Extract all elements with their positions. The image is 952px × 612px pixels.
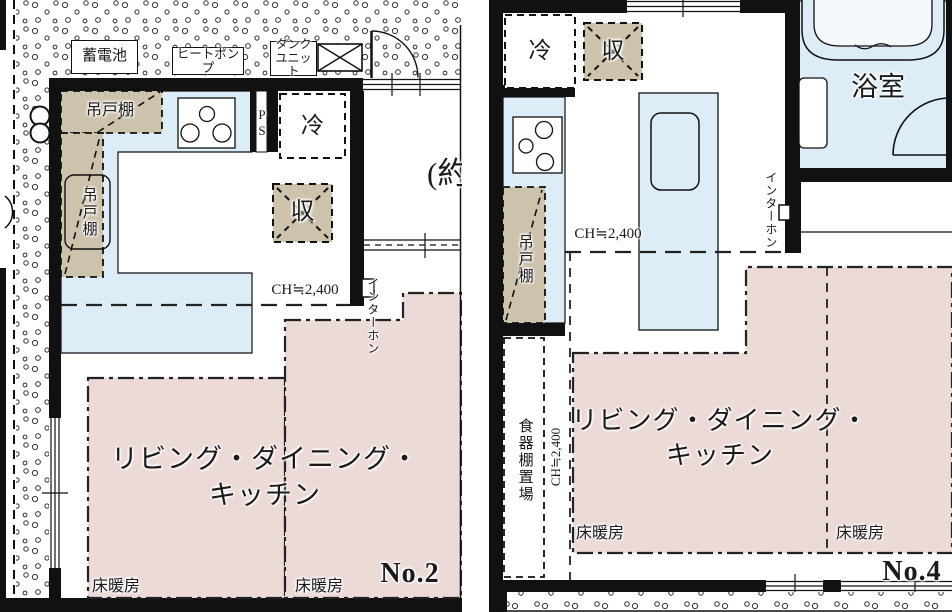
wall xyxy=(489,0,503,592)
plan-number-no4: No.4 xyxy=(870,555,952,589)
boundary-wall xyxy=(0,0,6,50)
label-fridge: 冷 xyxy=(505,15,575,88)
label-tank-unit: タンクユニット xyxy=(270,41,317,76)
bathtub-icon xyxy=(814,0,932,46)
label-tank-unit-line2: ユニット xyxy=(271,52,316,80)
label-tank-unit-line1: タンク xyxy=(271,38,316,52)
label-floor-heating: 床暖房 xyxy=(295,577,365,597)
room-label-ldk-line1: リビング・ダイニング・ xyxy=(111,441,419,477)
label-storage: 収 xyxy=(273,184,332,242)
label-fridge: 冷 xyxy=(280,94,345,158)
room-label-ldk: リビング・ダイニング・キッチン xyxy=(565,400,875,476)
label-room-size-cutoff: (約 xyxy=(427,156,462,208)
pebble-hatch-bottom xyxy=(507,592,952,610)
label-pipe-space: PS xyxy=(255,102,269,144)
wall xyxy=(0,598,462,612)
room-label-ldk-line2: キッチン xyxy=(111,477,419,513)
label-battery: 蓄電池 xyxy=(71,40,138,74)
boundary-wall xyxy=(0,268,6,612)
floor-plan-page: 蓄電池 ヒートポンプ タンクユニット 吊戸棚 吊戸棚 PS 冷 収 CH≒2,4… xyxy=(0,0,952,612)
room-label-ldk-line2: キッチン xyxy=(571,438,868,473)
room-label-ldk: リビング・ダイニング・キッチン xyxy=(100,438,430,516)
pebble-hatch-left xyxy=(16,78,49,598)
vanity-counter xyxy=(799,78,827,148)
room-label-ldk-line1: リビング・ダイニング・ xyxy=(571,403,868,438)
label-ceiling-height: CH≒2,400 xyxy=(263,282,347,300)
label-hanging-cupboard-left: 吊戸棚 xyxy=(76,179,100,245)
wall xyxy=(489,0,627,13)
intercom-unit-icon xyxy=(779,205,790,220)
label-bathroom: 浴室 xyxy=(836,70,920,106)
wall xyxy=(49,568,61,598)
wall xyxy=(49,78,363,91)
label-heat-pump: ヒートポンプ xyxy=(172,47,244,75)
wall xyxy=(785,168,952,182)
plan-number-no2: No.2 xyxy=(368,557,452,591)
label-ceiling-height: CH≒2,400 xyxy=(566,226,650,244)
label-floor-heating: 床暖房 xyxy=(836,524,906,544)
label-storage: 収 xyxy=(584,23,642,80)
wall xyxy=(503,580,766,592)
wall xyxy=(740,0,789,13)
wall xyxy=(350,91,364,306)
label-ceiling-height-side: CH≒2,400 xyxy=(547,417,565,497)
gas-meter-icon xyxy=(31,124,50,143)
label-intercom: インターホン xyxy=(363,264,381,368)
label-floor-heating: 床暖房 xyxy=(576,524,646,544)
wall xyxy=(785,0,800,182)
label-dish-shelf-space: 食器棚置場 xyxy=(511,390,537,530)
wall xyxy=(823,580,841,592)
label-hanging-cupboard: 吊戸棚 xyxy=(512,226,536,292)
label-intercom: インターホン xyxy=(761,158,779,262)
wall xyxy=(49,78,61,418)
label-hanging-cupboard-top: 吊戸棚 xyxy=(78,100,142,122)
wall xyxy=(503,323,565,336)
pipe-arc-icon xyxy=(5,196,13,228)
floor-plan-no2 xyxy=(0,0,462,612)
label-floor-heating: 床暖房 xyxy=(92,577,162,597)
